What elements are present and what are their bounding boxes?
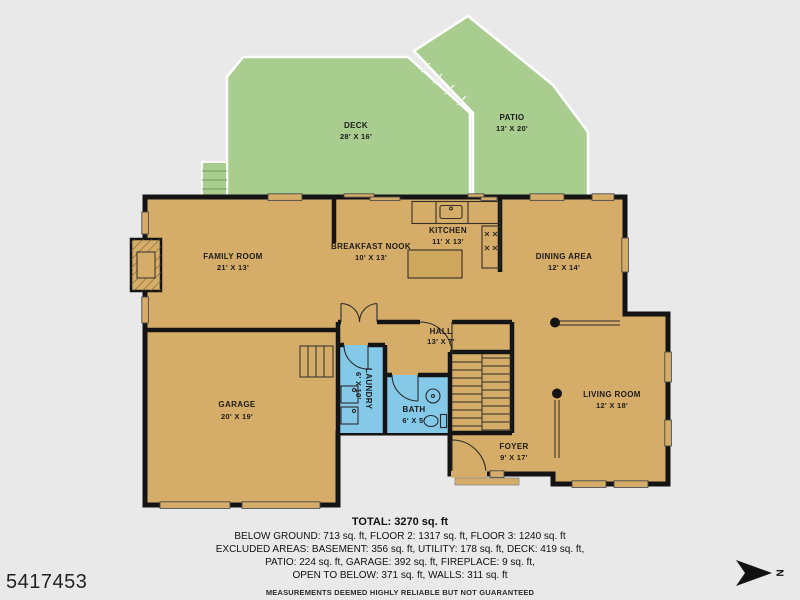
garage-name: GARAGE (218, 400, 256, 409)
deck-name: DECK (344, 121, 368, 130)
kitchen-island (408, 250, 462, 278)
area-summary: TOTAL: 3270 sq. ft BELOW GROUND: 713 sq.… (0, 516, 800, 597)
summary-line: PATIO: 224 sq. ft, GARAGE: 392 sq. ft, F… (0, 556, 800, 569)
summary-line: BELOW GROUND: 713 sq. ft, FLOOR 2: 1317 … (0, 530, 800, 543)
patio-dims: 13' X 20' (496, 124, 528, 133)
disclaimer: MEASUREMENTS DEEMED HIGHLY RELIABLE BUT … (0, 588, 800, 597)
breakfast-nook-dims: 10' X 13' (355, 253, 387, 262)
kitchen-dims: 11' X 13' (432, 237, 464, 246)
column (550, 318, 560, 328)
family-room-dims: 21' X 13' (217, 263, 249, 272)
summary-line: EXCLUDED AREAS: BASEMENT: 356 sq. ft, UT… (0, 543, 800, 556)
dining-area-dims: 12' X 14' (548, 263, 580, 272)
hall-name: HALL (430, 327, 453, 336)
laundry-dims: 6' X 10' (354, 372, 363, 400)
breakfast-nook-name: BREAKFAST NOOK (331, 242, 411, 251)
hall-dims: 13' X 7' (427, 337, 455, 346)
kitchen-name: KITCHEN (429, 226, 467, 235)
total-area: TOTAL: 3270 sq. ft (0, 516, 800, 528)
bath-dims: 6' X 5' (402, 416, 425, 425)
deck-dims: 28' X 16' (340, 132, 372, 141)
summary-line: OPEN TO BELOW: 371 sq. ft, WALLS: 311 sq… (0, 569, 800, 582)
garage-dims: 20' X 19' (221, 412, 253, 421)
living-room-name: LIVING ROOM (583, 390, 641, 399)
entry-step (455, 478, 519, 485)
dining-area-name: DINING AREA (536, 252, 592, 261)
family-room-name: FAMILY ROOM (203, 252, 262, 261)
bath-name: BATH (402, 405, 425, 414)
floor-plan-canvas: DECK 28' X 16' PATIO 13' X 20' (0, 0, 800, 600)
hall-label: HALL 13' X 7' (427, 327, 455, 346)
deck-stairs (202, 162, 227, 197)
front-door-opening (451, 471, 487, 478)
living-room-dims: 12' X 18' (596, 401, 628, 410)
laundry-name: LAUNDRY (364, 368, 373, 410)
floor-plan-page: DECK 28' X 16' PATIO 13' X 20' (0, 0, 800, 600)
mls-number: 5417453 (6, 571, 87, 594)
foyer-name: FOYER (499, 442, 528, 451)
foyer-dims: 9' X 17' (500, 453, 528, 462)
fireplace (131, 239, 161, 291)
patio-name: PATIO (499, 113, 524, 122)
column (552, 389, 562, 399)
